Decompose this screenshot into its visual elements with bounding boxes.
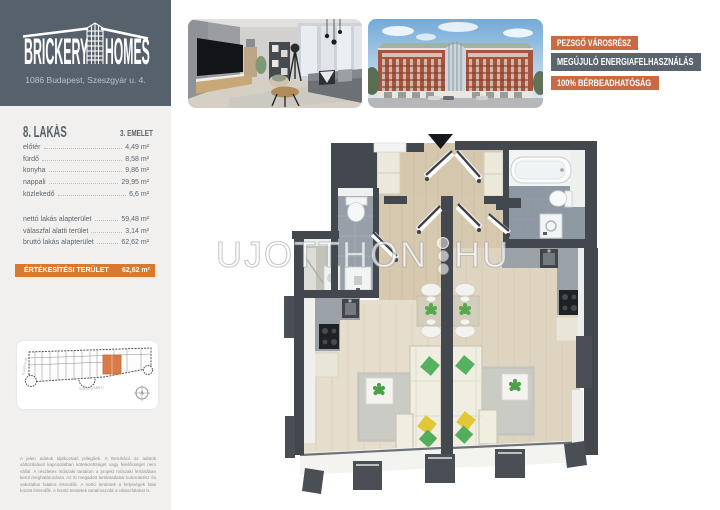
svg-text:HU: HU bbox=[454, 234, 510, 275]
svg-text:UJOTTHON: UJOTTHON bbox=[216, 234, 428, 275]
